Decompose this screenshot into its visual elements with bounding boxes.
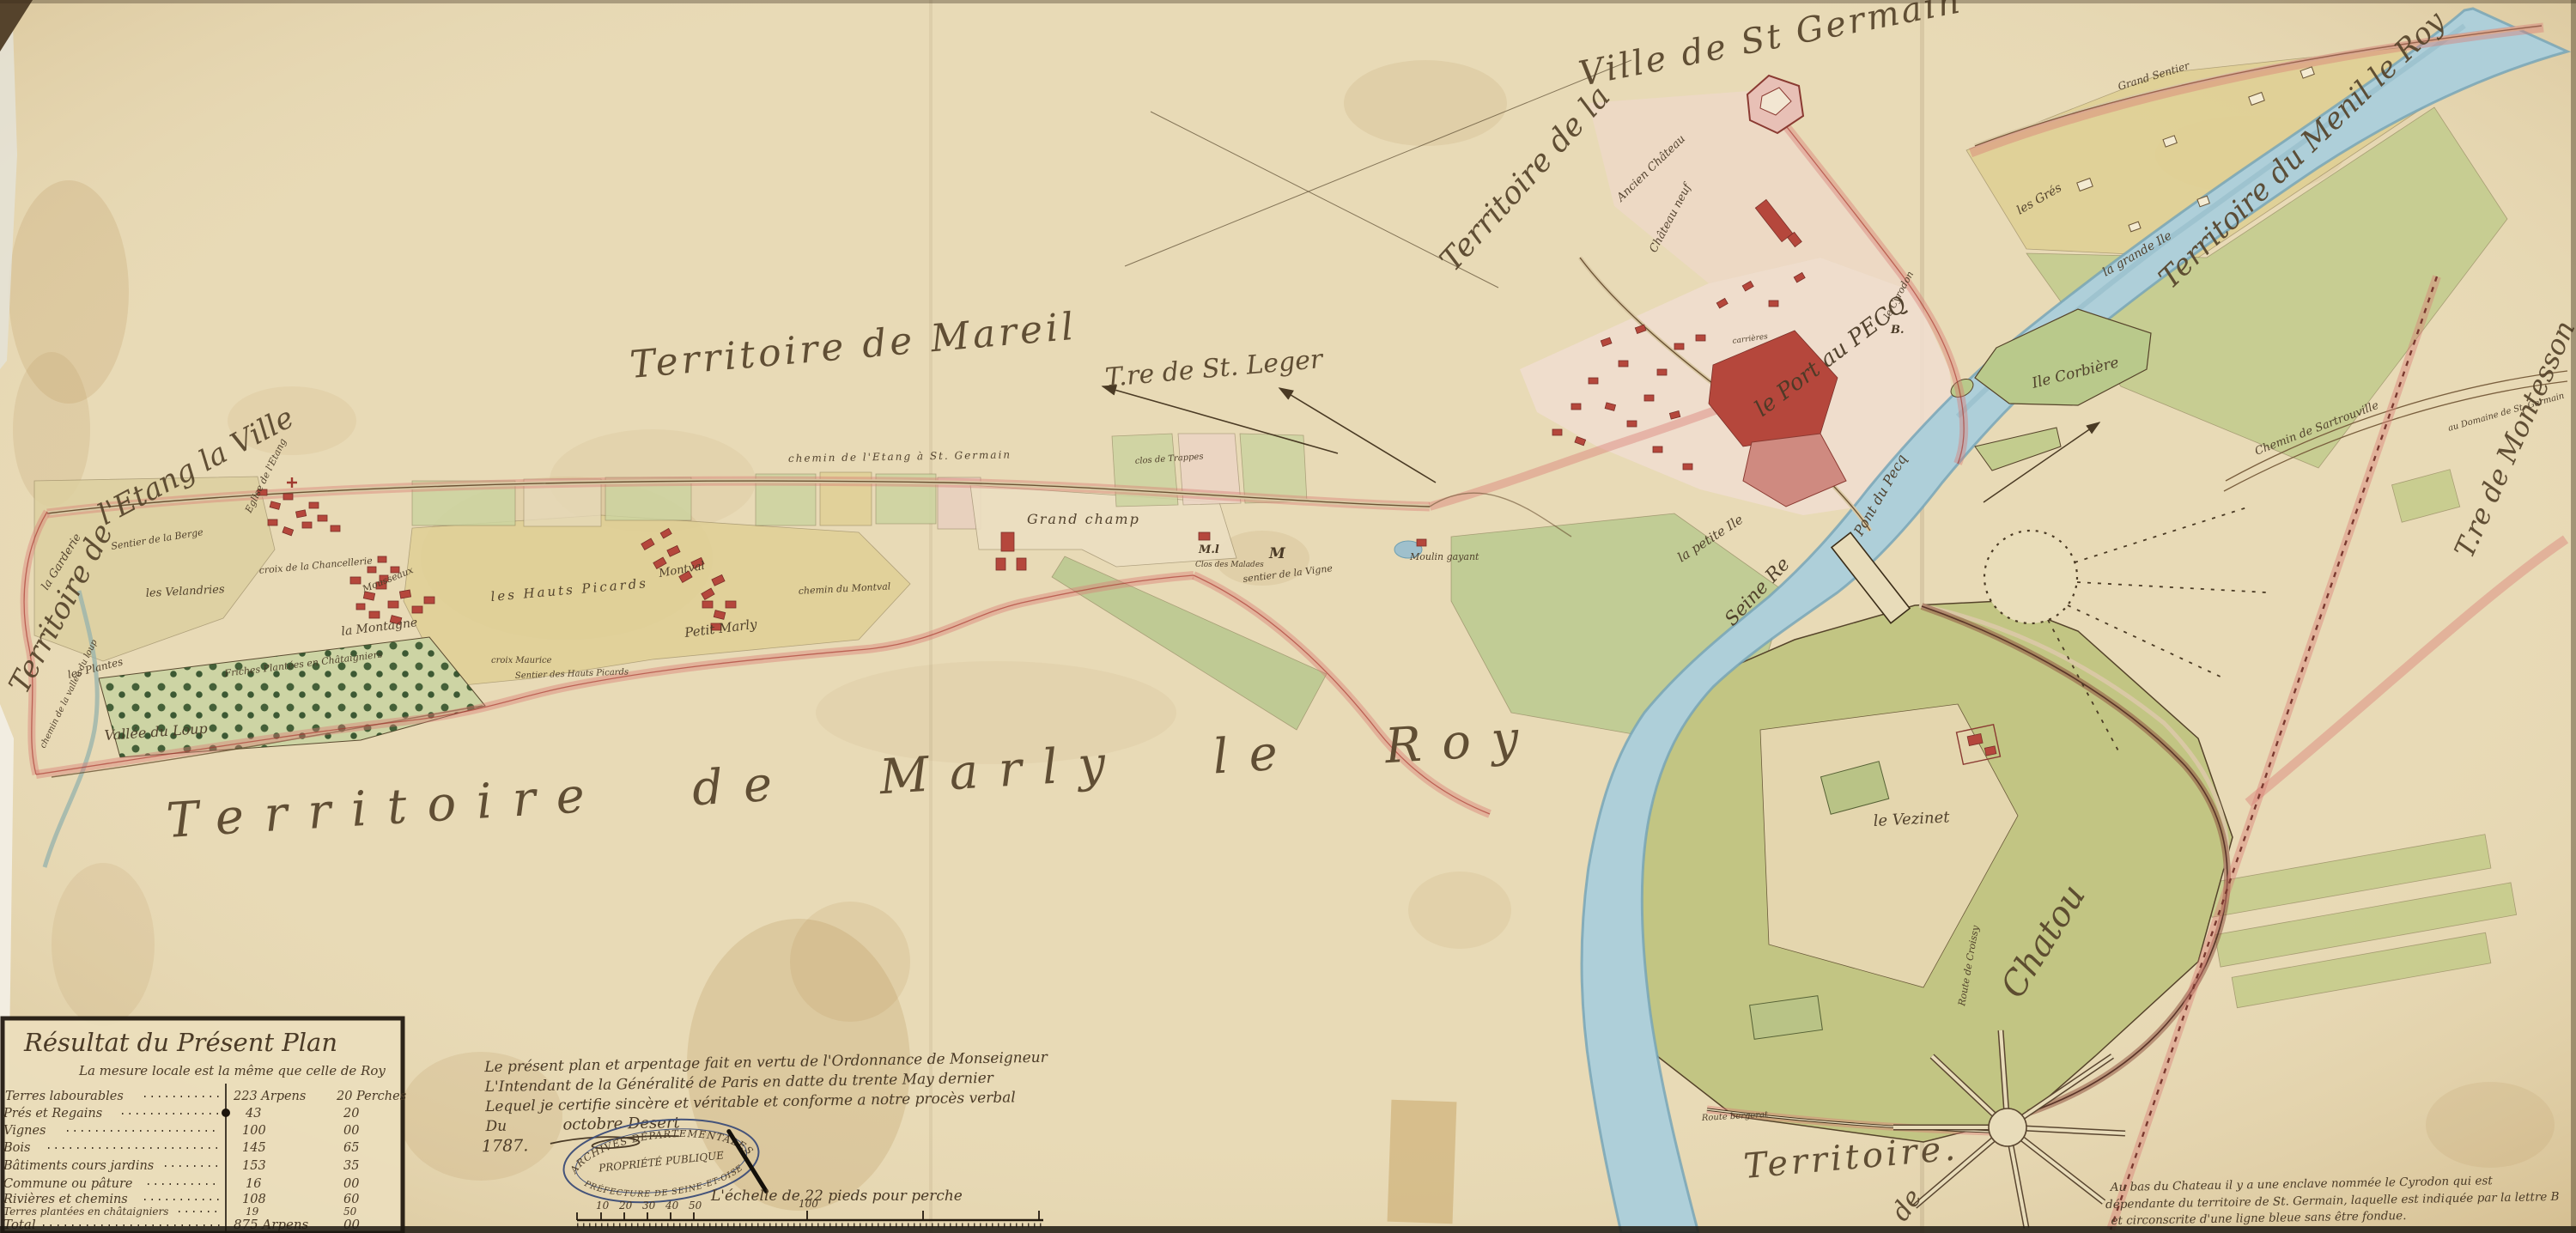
scale-tick-100: 100 [799, 1198, 818, 1210]
label-grand-champ: Grand champ [1027, 511, 1140, 527]
legend-box: Résultat du Présent Plan La mesure local… [3, 1018, 406, 1233]
svg-text:16: 16 [246, 1177, 261, 1191]
svg-text:Terres plantées en châtaignier: Terres plantées en châtaigniers [3, 1206, 168, 1218]
scale-label: L'échelle de 22 pieds pour perche [710, 1187, 963, 1205]
label-moulin-gayant: Moulin gayant [1409, 551, 1479, 562]
svg-text:00: 00 [343, 1177, 359, 1191]
svg-text:Terres labourables: Terres labourables [5, 1090, 124, 1103]
svg-text:153: 153 [242, 1159, 266, 1173]
svg-text:Vignes: Vignes [3, 1124, 46, 1138]
svg-text:20 Perches: 20 Perches [336, 1090, 406, 1103]
clos-malades-building [1199, 532, 1210, 540]
cert-signature: octobre Desert [562, 1114, 680, 1133]
svg-text:60: 60 [343, 1193, 359, 1206]
svg-text:00: 00 [343, 1124, 359, 1138]
legend-title: Résultat du Présent Plan [23, 1028, 337, 1057]
svg-text:20: 20 [343, 1107, 359, 1121]
svg-text:223 Arpens: 223 Arpens [233, 1090, 306, 1103]
map-svg: Territoire de l'Etang la Ville Territoir… [0, 0, 2576, 1233]
svg-text:Commune ou pâture: Commune ou pâture [3, 1177, 132, 1191]
label-cyrodon-b: B. [1890, 324, 1905, 337]
scale-tick-20: 20 [618, 1200, 633, 1212]
scale-tick-10: 10 [596, 1200, 610, 1212]
svg-text:145: 145 [242, 1141, 266, 1155]
svg-text:65: 65 [343, 1141, 359, 1155]
svg-text:108: 108 [242, 1193, 266, 1206]
svg-text:Prés et Regains: Prés et Regains [3, 1107, 102, 1121]
svg-text:50: 50 [343, 1206, 357, 1218]
scale-tick-40: 40 [665, 1200, 679, 1212]
svg-text:43: 43 [245, 1107, 261, 1121]
svg-text:Rivières et chemins: Rivières et chemins [3, 1193, 128, 1206]
cert-year: 1787. [482, 1136, 529, 1156]
label-croix-maurice: croix Maurice [491, 656, 552, 665]
scale-tick-50: 50 [689, 1200, 702, 1212]
label-clos-malades: Clos des Malades [1195, 561, 1264, 569]
historical-map-scan: Territoire de l'Etang la Ville Territoir… [0, 0, 2576, 1233]
svg-text:19: 19 [246, 1206, 259, 1218]
svg-text:Bâtiments cours jardins: Bâtiments cours jardins [3, 1159, 154, 1173]
cert-line-4a: Du [484, 1118, 507, 1135]
label-mark-m: M [1268, 545, 1286, 562]
moulin-gayant-building [1417, 539, 1426, 546]
svg-text:Bois: Bois [3, 1141, 30, 1155]
legend-subtitle: La mesure locale est la même que celle d… [78, 1063, 386, 1078]
svg-text:100: 100 [242, 1124, 266, 1138]
scale-tick-30: 30 [642, 1200, 656, 1212]
tape-mark [1388, 1100, 1457, 1224]
label-mark-ml: M.l [1198, 544, 1219, 556]
fold-crease-2 [929, 0, 933, 1233]
svg-text:35: 35 [343, 1159, 359, 1173]
